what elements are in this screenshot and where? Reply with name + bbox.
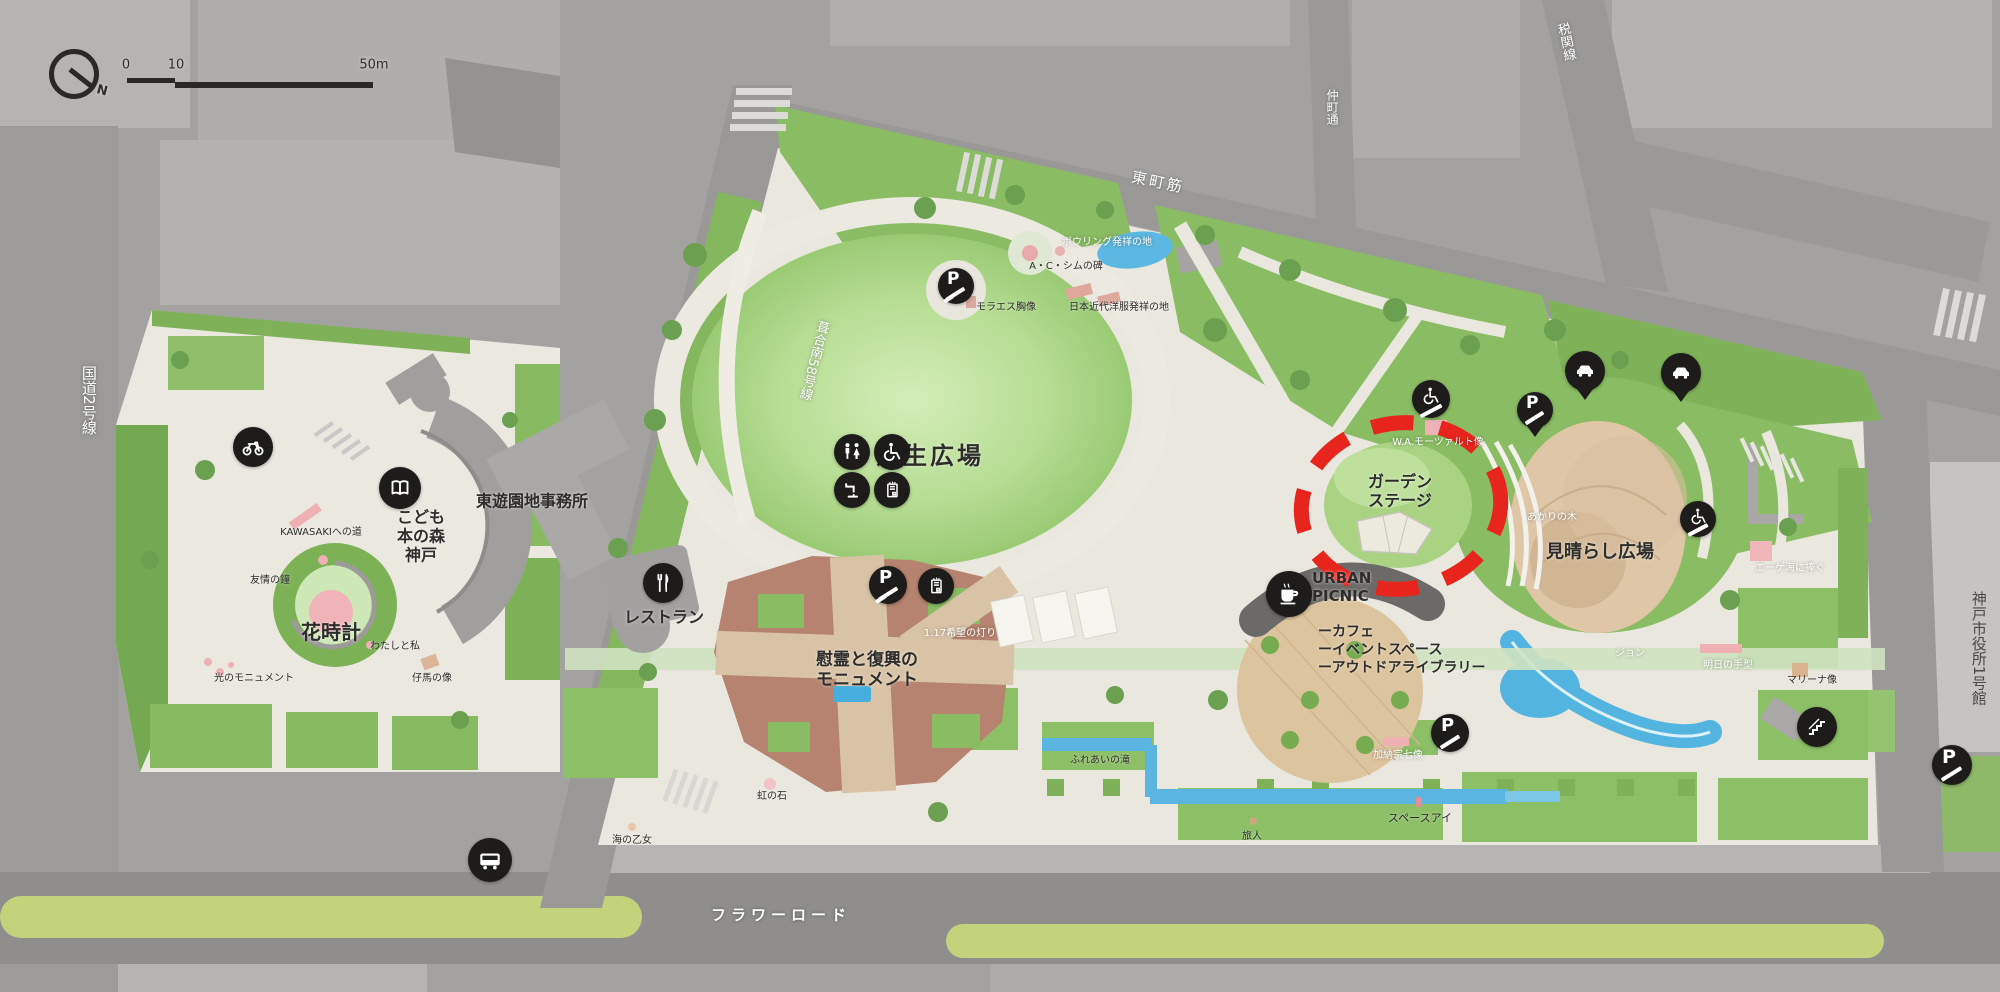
landmark-label-yujo: 友情の鐘: [250, 575, 290, 587]
landmark-label-kanou: 加納宗七像: [1373, 750, 1423, 762]
landmark-label-umi: 海の乙女: [612, 835, 652, 847]
landmark-label-akari-no-ki: あかりの木: [1527, 512, 1577, 524]
landmark-label-hikari-monument: 光のモニュメント: [214, 673, 294, 685]
scale-bar-long: [175, 82, 373, 88]
street-label-kokudo2: 国道2号線: [79, 365, 97, 435]
urban-picnic-item-cafe: ーカフェ: [1318, 624, 1374, 641]
restaurant-icon: [643, 563, 683, 603]
stairs-icon: [1797, 707, 1837, 747]
landmark-label-niji-no-ishi: 虹の石: [757, 791, 787, 803]
book-library-icon: [379, 467, 421, 509]
drinking-fountain-icon: [834, 472, 870, 508]
scale-zero: 0: [122, 57, 130, 72]
parking-car-pin-icon: [1565, 351, 1605, 391]
building-label-shiyakusho: 神戸市役所1号館: [1969, 591, 1987, 706]
area-label-park-office: 東遊園地事務所: [476, 493, 588, 512]
landmark-label-ac-sim: A・C・シムの碑: [1029, 261, 1103, 273]
landmark-label-yofuku: 日本近代洋服発祥の地: [1069, 302, 1169, 314]
urban-picnic-item-outdoor-library: ーアウトドアライブラリー: [1318, 660, 1485, 677]
parking-ramp-icon: P: [1431, 714, 1469, 752]
street-label-flower-road: フラワーロード: [711, 907, 851, 925]
vending-machine-icon: [918, 568, 954, 604]
parking-car-pin-icon: [1661, 353, 1701, 393]
landmark-label-bowling: ボウリング発祥の地: [1062, 237, 1152, 249]
landmark-label-tabibito: 旅人: [1242, 831, 1262, 843]
parking-ramp-icon: P: [1932, 745, 1972, 785]
scale-bar-short: [127, 78, 175, 83]
vending-machine-icon: [874, 472, 910, 508]
landmark-label-moraes: モラエス胸像: [976, 302, 1036, 314]
bus-stop-icon: [468, 838, 512, 882]
park-map: N 0 10 50m 国道2号線 フラワーロード 東町筋 葺合南58号線 仲町通…: [0, 0, 2000, 992]
street-label-nakamachi: 仲町通: [1325, 89, 1339, 125]
map-base-artwork: [0, 0, 2000, 992]
coffee-cafe-icon: [1266, 571, 1312, 617]
parking-ramp-icon: P: [938, 268, 974, 304]
area-label-memorial-monument: 慰霊と復興の モニュメント: [816, 650, 918, 690]
scale-fifty: 50m: [359, 57, 388, 72]
landmark-label-jon: ジョン: [1615, 648, 1645, 660]
bicycle-parking-icon: [233, 427, 273, 467]
landmark-label-mozart: W.A.モーツァルト像: [1392, 437, 1484, 449]
landmark-label-fureai-falls: ふれあいの滝: [1070, 755, 1130, 767]
area-label-urban-picnic: URBAN PICNIC: [1312, 570, 1371, 605]
landmark-label-kouma: 仔馬の像: [412, 673, 452, 685]
wheelchair-ramp-icon: [1680, 501, 1716, 537]
area-label-kodomo-book-forest: こども 本の森 神戸: [397, 509, 445, 566]
scale-ten: 10: [168, 57, 185, 72]
area-label-lookout-plaza: 見晴らし広場: [1546, 541, 1654, 562]
urban-picnic-item-event-space: ーイベントスペース: [1318, 642, 1442, 659]
accessible-restroom-icon: [874, 434, 910, 470]
landmark-label-kawasaki: KAWASAKIへの道: [280, 527, 362, 539]
landmark-label-marina: マリーナ像: [1787, 675, 1837, 687]
area-label-flower-clock: 花時計: [301, 621, 361, 645]
landmark-label-aegean: エーゲ海に捧ぐ: [1755, 563, 1825, 575]
landmark-label-asu-no-tegata: 明日の手型: [1703, 660, 1753, 672]
restroom-icon: [834, 434, 870, 470]
wheelchair-ramp-icon: [1412, 380, 1450, 418]
parking-ramp-icon: P: [869, 566, 907, 604]
area-label-garden-stage: ガーデン ステージ: [1368, 473, 1432, 511]
landmark-label-kibou-no-akari: 1.17希望の灯り: [924, 628, 996, 640]
landmark-label-watashi: わたしと私: [370, 641, 420, 653]
parking-ramp-icon: P: [1517, 392, 1553, 428]
landmark-label-space-eye: スペースアイ: [1388, 813, 1452, 826]
area-label-restaurant: レストラン: [624, 609, 704, 628]
